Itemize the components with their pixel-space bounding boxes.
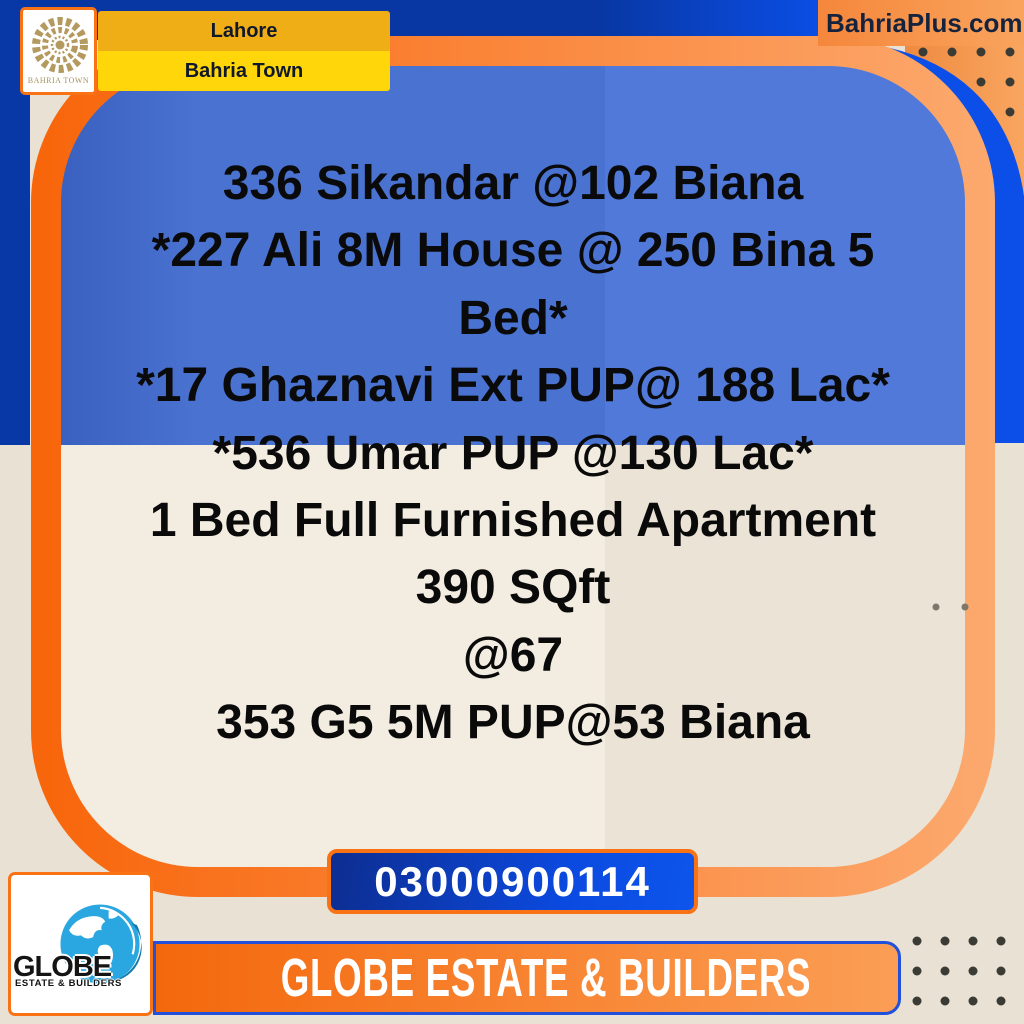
- website-link[interactable]: BahriaPlus.com: [818, 0, 1024, 46]
- phone-number-button[interactable]: 03000900114: [327, 849, 698, 914]
- globe-estate-logo: GLOBE ESTATE & BUILDERS: [8, 872, 153, 1016]
- listing-line: 336 Sikandar @102 Biana: [61, 150, 965, 217]
- listing-line: @67: [61, 622, 965, 689]
- bahria-town-logo: BAHRIA TOWN: [20, 7, 97, 95]
- community-label: Bahria Town: [98, 51, 390, 91]
- listing-line: 353 G5 5M PUP@53 Biana: [61, 689, 965, 756]
- city-label: Lahore: [98, 11, 390, 51]
- listing-line: Bed*: [61, 285, 965, 352]
- agency-banner-text: GLOBE ESTATE & BUILDERS: [281, 944, 811, 1012]
- agency-banner: GLOBE ESTATE & BUILDERS: [153, 941, 901, 1015]
- listing-line: *17 Ghaznavi Ext PUP@ 188 Lac*: [61, 352, 965, 419]
- listing-line: 390 SQft: [61, 554, 965, 621]
- listing-line: *536 Umar PUP @130 Lac*: [61, 420, 965, 487]
- bahria-logo-caption: BAHRIA TOWN: [23, 76, 94, 85]
- listing-text-block: 336 Sikandar @102 Biana *227 Ali 8M Hous…: [61, 150, 965, 757]
- bahria-emblem-icon: [30, 15, 90, 75]
- listing-line: 1 Bed Full Furnished Apartment: [61, 487, 965, 554]
- location-box: Lahore Bahria Town: [98, 11, 390, 91]
- ad-poster: BAHRIA TOWN Lahore Bahria Town BahriaPlu…: [0, 0, 1024, 1024]
- globe-logo-tagline: ESTATE & BUILDERS: [15, 978, 122, 989]
- listing-line: *227 Ali 8M House @ 250 Bina 5: [61, 217, 965, 284]
